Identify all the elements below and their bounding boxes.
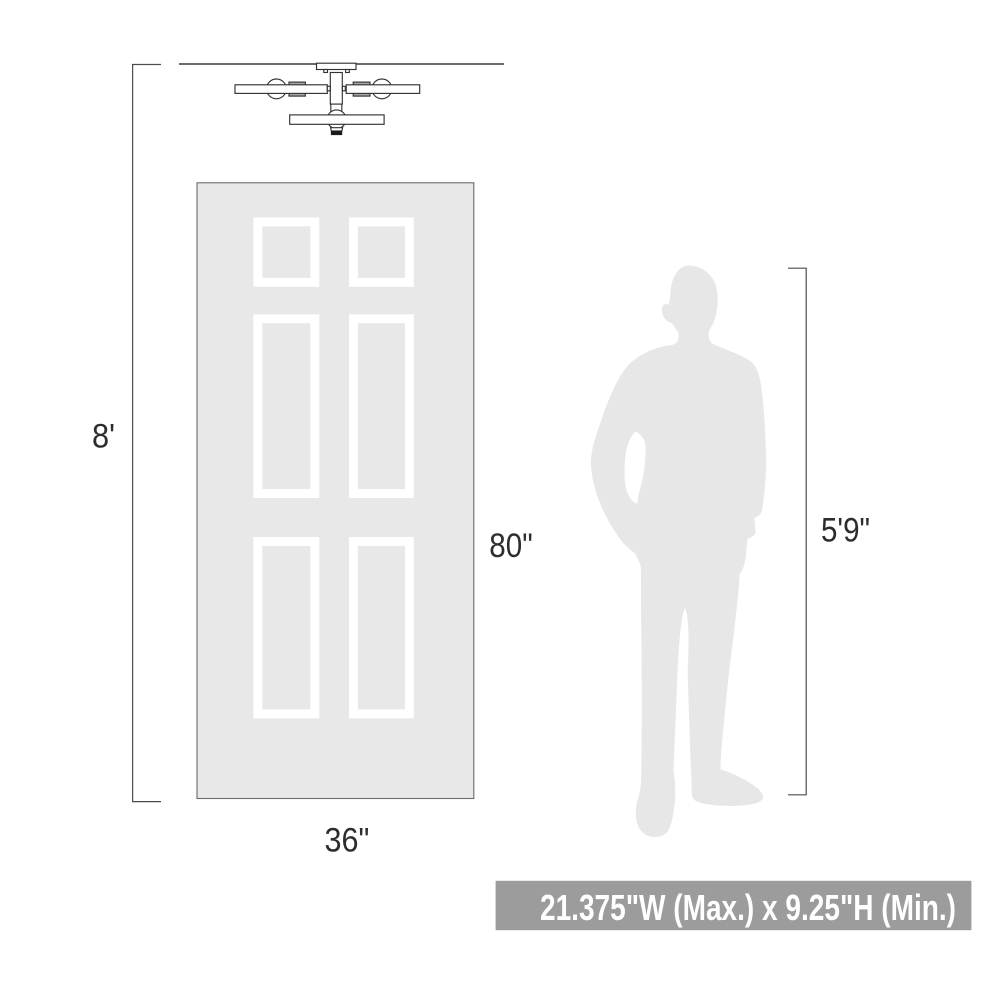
svg-text:5'9": 5'9" <box>821 512 870 550</box>
svg-text:21.375"W (Max.) x 9.25"H (Min.: 21.375"W (Max.) x 9.25"H (Min.) <box>540 887 956 928</box>
svg-text:8': 8' <box>92 417 115 455</box>
svg-text:36": 36" <box>325 821 370 859</box>
svg-text:80": 80" <box>489 527 532 565</box>
